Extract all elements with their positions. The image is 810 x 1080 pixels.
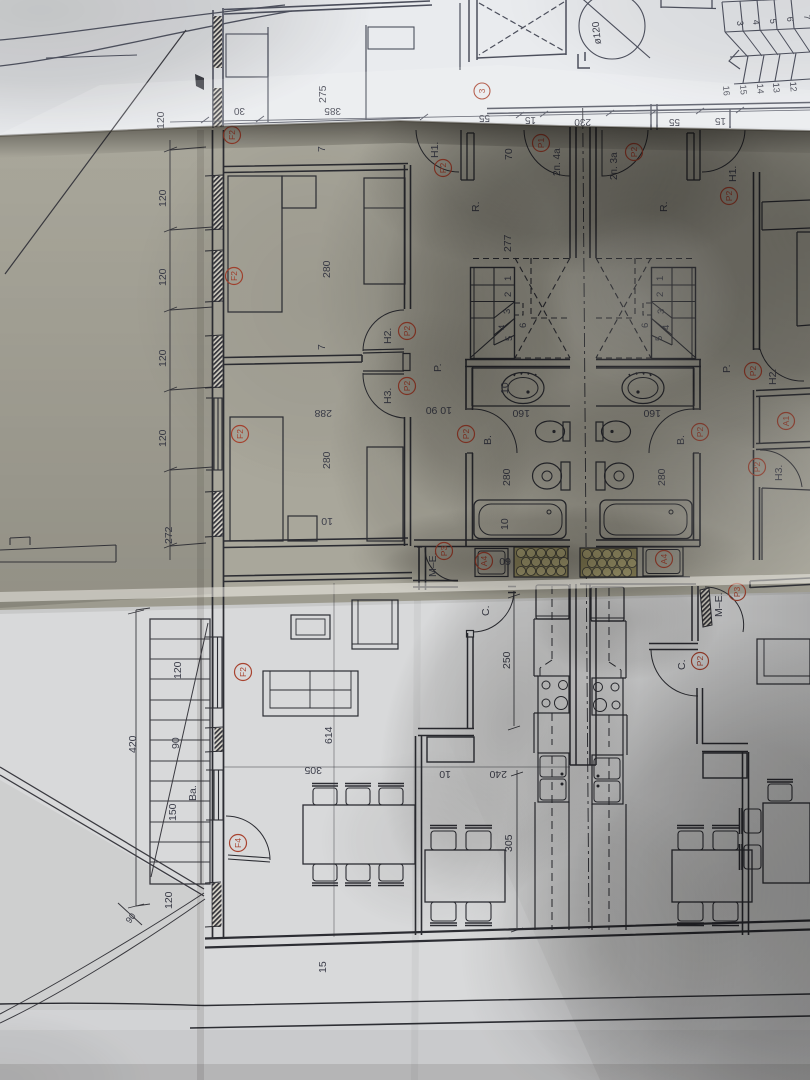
svg-text:F2: F2 bbox=[238, 667, 248, 677]
svg-text:305: 305 bbox=[304, 764, 322, 776]
svg-text:15: 15 bbox=[317, 961, 329, 973]
svg-text:420: 420 bbox=[127, 735, 139, 753]
svg-text:120: 120 bbox=[172, 661, 184, 679]
svg-text:3: 3 bbox=[735, 20, 745, 26]
svg-text:614: 614 bbox=[323, 726, 335, 744]
svg-text:F4: F4 bbox=[233, 838, 243, 848]
svg-text:150: 150 bbox=[167, 803, 179, 821]
svg-text:10: 10 bbox=[321, 515, 333, 527]
svg-text:7: 7 bbox=[802, 14, 810, 20]
svg-text:90: 90 bbox=[170, 737, 182, 749]
svg-text:6: 6 bbox=[785, 16, 795, 22]
svg-text:4: 4 bbox=[751, 19, 761, 25]
svg-text:5: 5 bbox=[768, 18, 778, 24]
